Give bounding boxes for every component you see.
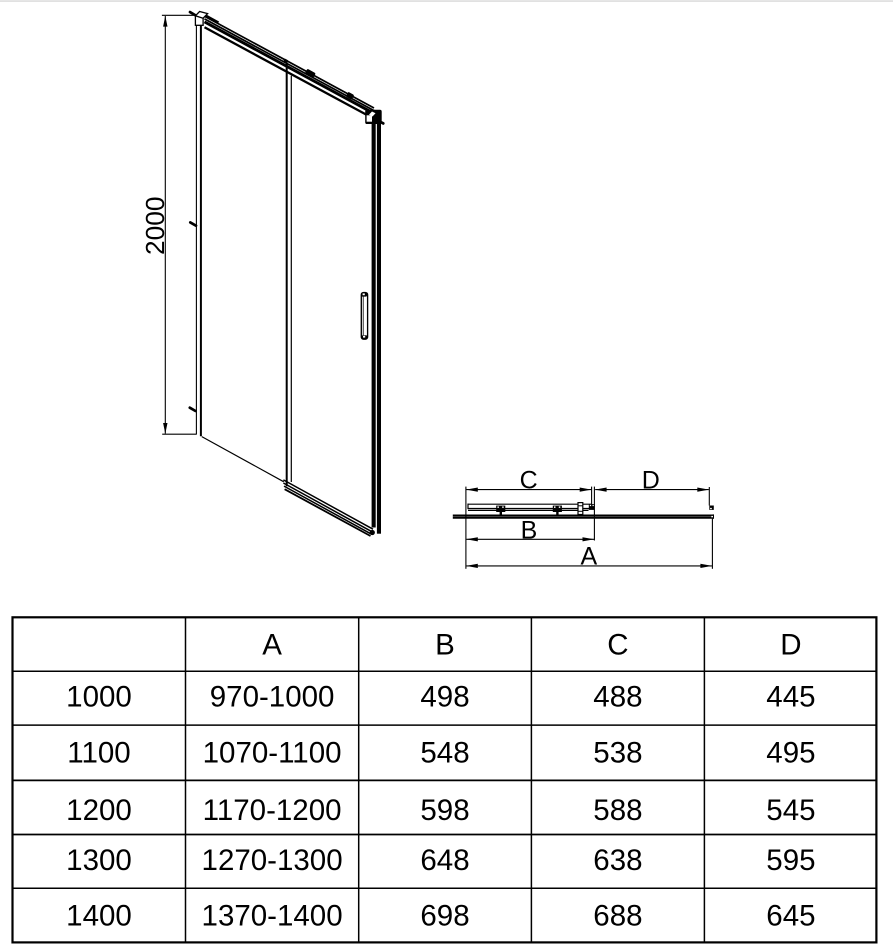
svg-text:698: 698	[420, 899, 469, 932]
svg-text:1270-1300: 1270-1300	[202, 844, 343, 877]
svg-text:C: C	[520, 466, 538, 494]
svg-text:1400: 1400	[66, 899, 132, 932]
svg-text:1170-1200: 1170-1200	[203, 794, 342, 827]
svg-text:D: D	[780, 628, 801, 661]
svg-text:495: 495	[766, 737, 815, 770]
svg-text:A: A	[580, 542, 597, 570]
svg-text:970-1000: 970-1000	[210, 680, 335, 713]
svg-text:595: 595	[766, 844, 815, 877]
svg-text:588: 588	[593, 794, 642, 827]
svg-text:688: 688	[593, 899, 642, 932]
svg-text:B: B	[521, 516, 538, 544]
svg-text:1100: 1100	[67, 737, 130, 770]
svg-text:2000: 2000	[140, 196, 170, 255]
svg-text:548: 548	[420, 737, 469, 770]
svg-text:1200: 1200	[66, 794, 132, 827]
svg-text:445: 445	[766, 680, 815, 713]
svg-text:545: 545	[766, 794, 815, 827]
svg-text:1370-1400: 1370-1400	[202, 899, 343, 932]
svg-text:638: 638	[593, 844, 642, 877]
svg-text:C: C	[607, 628, 628, 661]
svg-text:488: 488	[593, 680, 642, 713]
svg-text:1070-1100: 1070-1100	[203, 737, 342, 770]
svg-text:1000: 1000	[66, 680, 132, 713]
svg-text:498: 498	[420, 680, 469, 713]
svg-text:598: 598	[420, 794, 469, 827]
svg-text:538: 538	[593, 737, 642, 770]
svg-text:1300: 1300	[66, 844, 132, 877]
svg-text:648: 648	[420, 844, 469, 877]
svg-text:645: 645	[766, 899, 815, 932]
svg-text:B: B	[435, 628, 455, 661]
svg-text:D: D	[642, 466, 660, 494]
svg-text:A: A	[262, 628, 282, 661]
